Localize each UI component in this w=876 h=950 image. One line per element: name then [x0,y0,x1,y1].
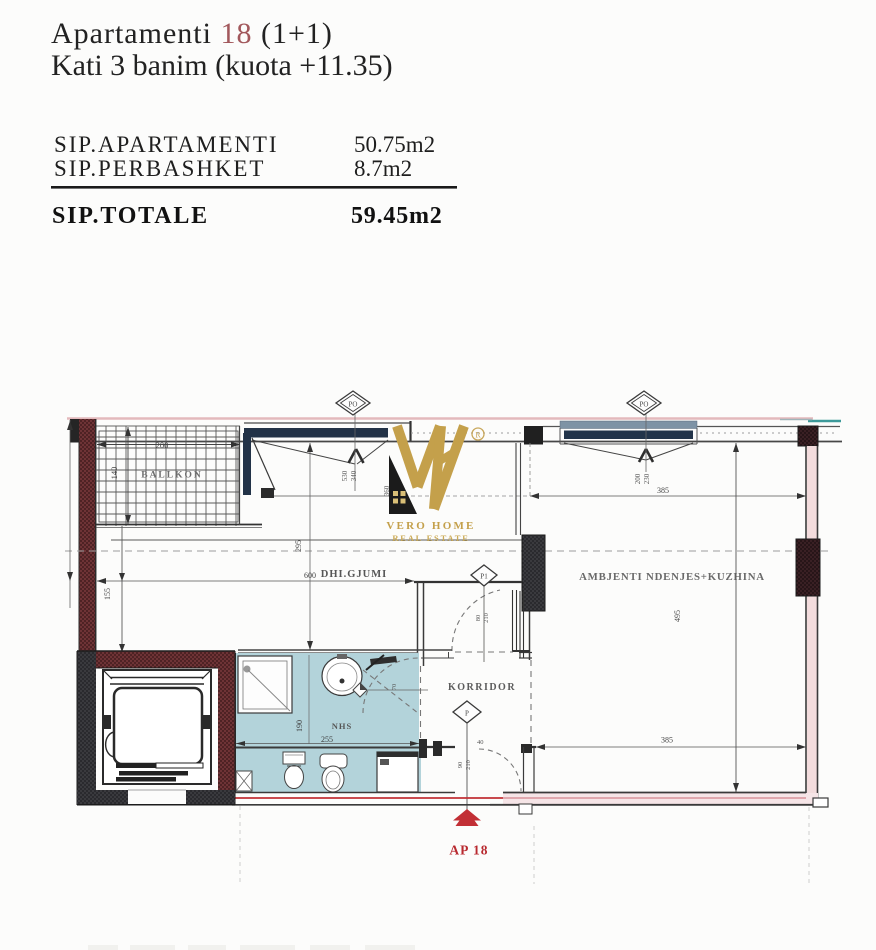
svg-text:190: 190 [295,720,304,732]
svg-text:Kati 3 banim (kuota +11.35): Kati 3 banim (kuota +11.35) [51,49,393,82]
svg-text:230: 230 [643,473,651,484]
svg-text:40: 40 [477,739,484,746]
svg-text:385: 385 [657,486,669,495]
svg-text:R: R [475,431,481,440]
svg-text:70: 70 [391,684,398,691]
svg-text:385: 385 [661,736,673,745]
svg-text:DHI.GJUMI: DHI.GJUMI [321,569,387,580]
svg-text:PO: PO [640,401,649,409]
svg-text:200: 200 [634,473,642,484]
svg-text:AP 18: AP 18 [449,843,488,858]
svg-text:50.75m2: 50.75m2 [354,132,435,157]
svg-text:VERO HOME: VERO HOME [386,520,475,532]
svg-text:P1: P1 [480,573,488,581]
svg-text:210: 210 [465,760,472,770]
svg-text:BALLKON: BALLKON [141,471,203,481]
svg-text:340: 340 [350,470,358,481]
svg-text:SIP.APARTAMENTI: SIP.APARTAMENTI [54,132,278,157]
svg-text:P: P [465,710,469,718]
svg-text:59.45m2: 59.45m2 [351,203,443,229]
svg-text:PO: PO [349,401,358,409]
svg-text:140: 140 [109,467,119,480]
svg-text:80: 80 [475,615,482,622]
svg-text:REAL ESTATE: REAL ESTATE [392,533,469,543]
svg-text:SIP.TOTALE: SIP.TOTALE [52,203,209,229]
svg-text:SIP.PERBASHKET: SIP.PERBASHKET [54,156,265,181]
svg-text:255: 255 [321,735,333,744]
svg-text:495: 495 [673,610,682,622]
svg-text:530: 530 [341,470,349,481]
svg-text:210: 210 [483,613,490,623]
svg-text:155: 155 [103,588,112,600]
svg-text:200: 200 [156,440,169,450]
svg-text:AMBJENTI NDENJES+KUZHINA: AMBJENTI NDENJES+KUZHINA [579,571,765,583]
svg-text:8.7m2: 8.7m2 [354,156,412,181]
svg-text:KORRIDOR: KORRIDOR [448,682,516,693]
svg-text:Apartamenti 18 (1+1): Apartamenti 18 (1+1) [51,17,333,50]
svg-text:90: 90 [457,762,464,769]
svg-text:NHS: NHS [332,721,352,731]
svg-text:295: 295 [294,540,303,552]
